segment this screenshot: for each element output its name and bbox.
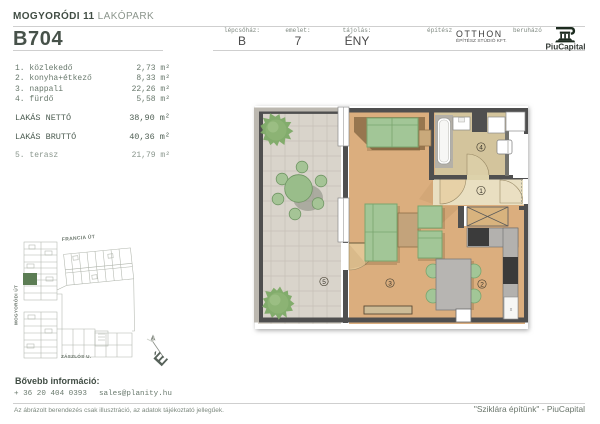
svg-text:FRANCIA ÚT: FRANCIA ÚT <box>62 233 96 243</box>
svg-text:É: É <box>150 349 171 370</box>
svg-text:PiuCapital: PiuCapital <box>545 42 585 51</box>
svg-text:1: 1 <box>479 188 483 195</box>
svg-text:MOGYORÓDI ÚT: MOGYORÓDI ÚT <box>12 285 19 325</box>
svg-text:3: 3 <box>388 281 392 288</box>
svg-text:5: 5 <box>322 279 326 286</box>
svg-text:ZÁSZLÓS U.: ZÁSZLÓS U. <box>61 352 91 359</box>
svg-text:2: 2 <box>480 282 484 289</box>
svg-text:4: 4 <box>479 145 483 152</box>
